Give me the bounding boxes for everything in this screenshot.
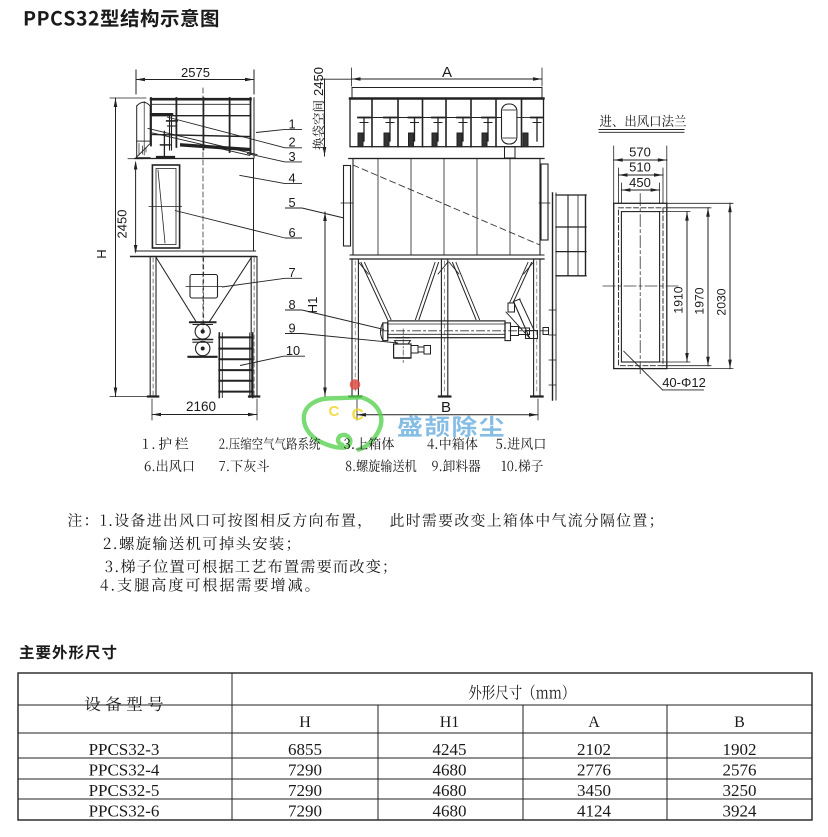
svg-text:A: A [442,64,452,81]
svg-text:4245: 4245 [433,740,467,759]
svg-text:2575: 2575 [181,65,210,80]
svg-text:B: B [441,399,451,416]
svg-text:2160: 2160 [186,399,216,414]
svg-text:PPCS32-4: PPCS32-4 [89,761,160,780]
svg-text:3250: 3250 [723,781,757,800]
svg-text:510: 510 [629,160,651,175]
svg-text:4680: 4680 [433,802,467,821]
svg-text:3924: 3924 [723,802,758,821]
svg-text:H: H [299,714,311,731]
svg-text:1970: 1970 [693,287,707,314]
svg-text:2776: 2776 [577,761,611,780]
svg-text:4680: 4680 [433,761,467,780]
svg-text:PPCS32-5: PPCS32-5 [89,781,160,800]
svg-text:4680: 4680 [433,781,467,800]
svg-text:2576: 2576 [723,761,757,780]
svg-text:2102: 2102 [577,740,611,759]
svg-text:H1: H1 [305,297,320,314]
svg-text:PPCS32-3: PPCS32-3 [89,740,160,759]
svg-text:C: C [329,403,340,420]
svg-text:7290: 7290 [288,802,322,821]
svg-text:1910: 1910 [672,286,686,313]
svg-text:H: H [94,249,109,258]
svg-text:2450: 2450 [115,210,130,239]
svg-text:6855: 6855 [288,740,322,759]
svg-text:A: A [588,714,600,731]
svg-text:3450: 3450 [577,781,611,800]
svg-text:4124: 4124 [577,802,612,821]
svg-text:C: C [352,405,364,424]
svg-text:7290: 7290 [288,761,322,780]
svg-text:PPCS32-6: PPCS32-6 [89,802,160,821]
svg-text:H1: H1 [440,714,460,731]
svg-text:2030: 2030 [715,288,729,315]
svg-text:B: B [734,714,745,731]
svg-text:1902: 1902 [723,740,757,759]
svg-text:40-Φ12: 40-Φ12 [662,375,706,390]
svg-text:7290: 7290 [288,781,322,800]
svg-text:2: 2 [288,135,295,150]
svg-text:450: 450 [629,175,651,190]
svg-text:570: 570 [629,145,651,160]
svg-text:2450: 2450 [311,67,326,96]
